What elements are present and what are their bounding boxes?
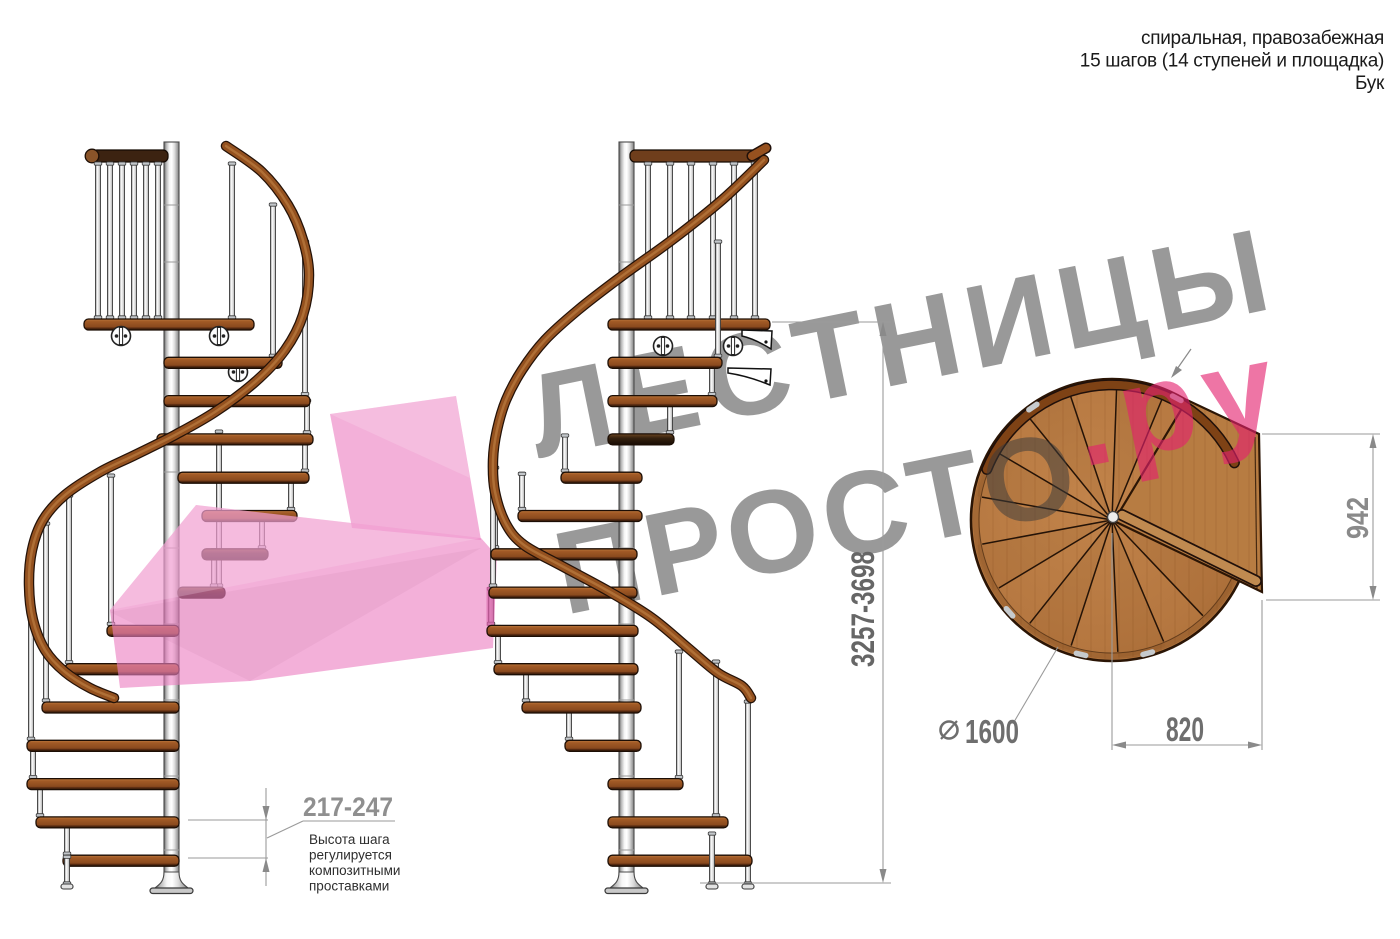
svg-text:820: 820 xyxy=(1166,711,1204,749)
svg-text:217-247: 217-247 xyxy=(303,792,393,822)
svg-text:1600: 1600 xyxy=(965,713,1019,750)
svg-text:3257-3698: 3257-3698 xyxy=(845,551,881,667)
svg-text:Высота шагарегулируетсякомпози: Высота шагарегулируетсякомпозитнымипрост… xyxy=(309,832,400,894)
svg-text:942: 942 xyxy=(1340,497,1375,539)
